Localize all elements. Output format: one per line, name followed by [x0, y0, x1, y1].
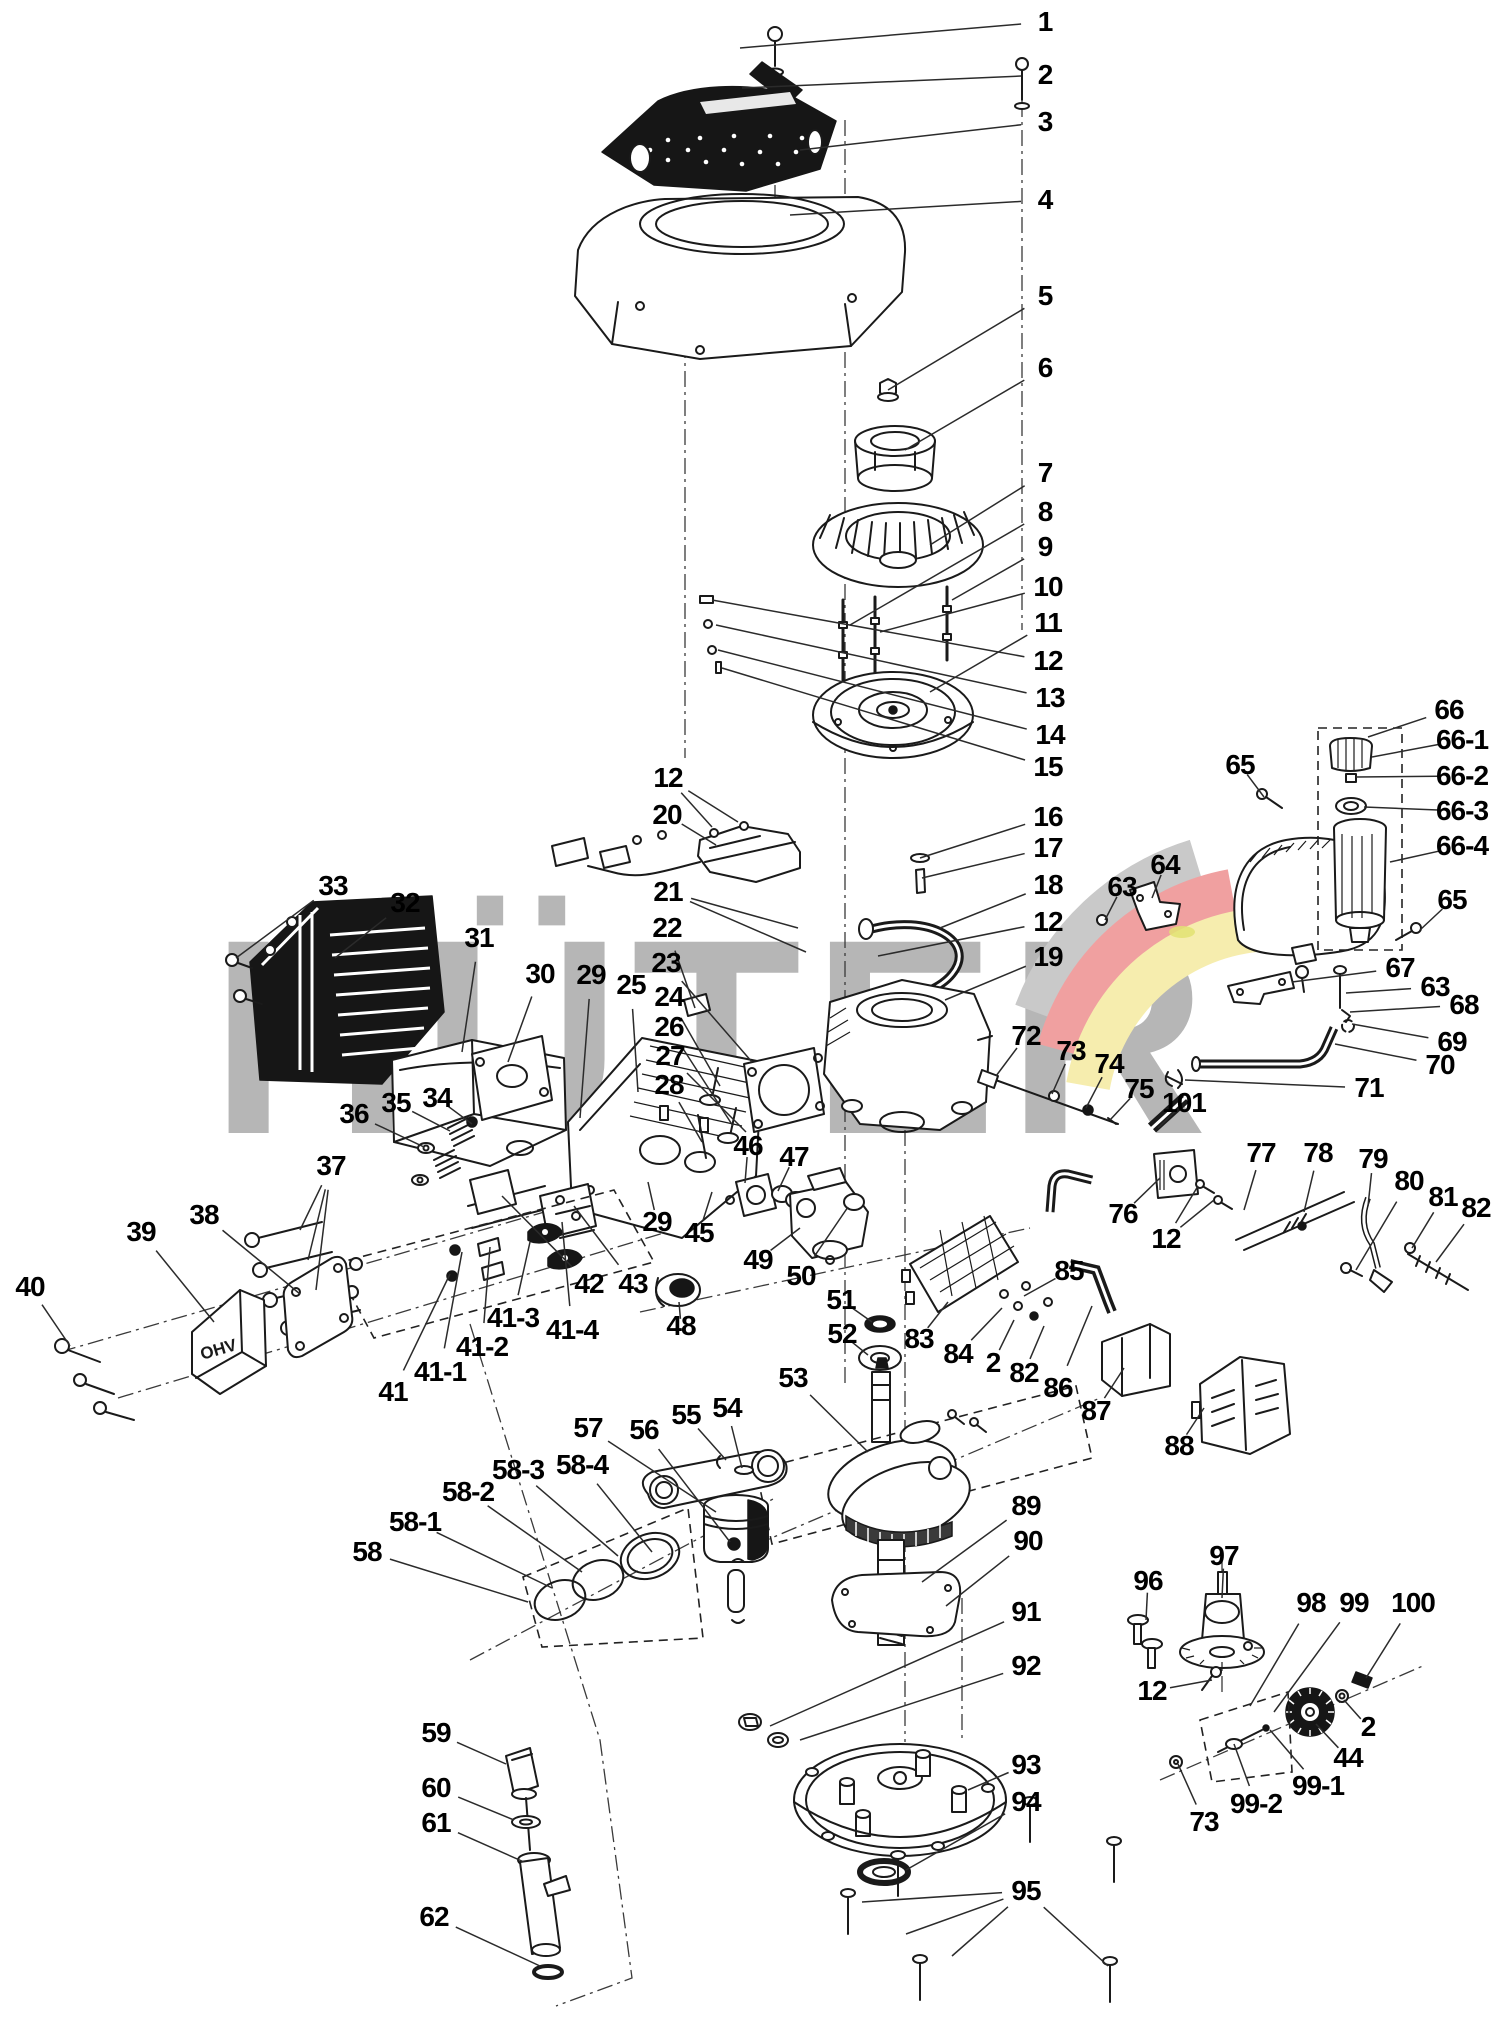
- part-label-40: 40: [15, 1271, 44, 1303]
- part-label-52: 52: [827, 1318, 856, 1350]
- part-label-93: 93: [1011, 1749, 1040, 1781]
- part-label-101: 101: [1162, 1087, 1206, 1119]
- part-label-59: 59: [421, 1717, 450, 1749]
- part-label-95: 95: [1011, 1875, 1040, 1907]
- part-label-83: 83: [904, 1323, 933, 1355]
- part-label-66-3: 66-3: [1436, 795, 1488, 827]
- part-label-58-3: 58-3: [492, 1454, 544, 1486]
- part-label-88: 88: [1164, 1430, 1193, 1462]
- part-label-22: 22: [652, 912, 681, 944]
- part-label-41-1: 41-1: [414, 1356, 466, 1388]
- part-label-65: 65: [1225, 749, 1254, 781]
- part-label-4: 4: [1038, 184, 1053, 216]
- part-label-81: 81: [1428, 1181, 1457, 1213]
- part-label-66-2: 66-2: [1436, 760, 1488, 792]
- part-label-9: 9: [1038, 531, 1053, 563]
- part-label-55: 55: [671, 1399, 700, 1431]
- part-label-77: 77: [1246, 1137, 1275, 1169]
- part-label-82: 82: [1461, 1192, 1490, 1224]
- part-label-6: 6: [1038, 352, 1053, 384]
- part-label-98: 98: [1296, 1587, 1325, 1619]
- part-label-87: 87: [1081, 1395, 1110, 1427]
- part-label-63: 63: [1107, 871, 1136, 903]
- part-label-94: 94: [1011, 1786, 1040, 1818]
- part-label-43: 43: [618, 1268, 647, 1300]
- part-label-61: 61: [421, 1807, 450, 1839]
- part-label-99-1: 99-1: [1292, 1770, 1344, 1802]
- part-label-64: 64: [1150, 849, 1179, 881]
- part-label-50: 50: [786, 1260, 815, 1292]
- part-label-78: 78: [1303, 1137, 1332, 1169]
- part-label-2: 2: [986, 1347, 1001, 1379]
- part-label-41-4: 41-4: [546, 1314, 598, 1346]
- part-label-41-3: 41-3: [487, 1302, 539, 1334]
- part-label-73: 73: [1056, 1035, 1085, 1067]
- part-label-1: 1: [1038, 6, 1053, 38]
- part-label-74: 74: [1094, 1048, 1123, 1080]
- part-label-49: 49: [743, 1244, 772, 1276]
- part-label-86: 86: [1043, 1372, 1072, 1404]
- part-label-16: 16: [1033, 801, 1062, 833]
- part-label-12: 12: [653, 762, 682, 794]
- part-label-67: 67: [1385, 952, 1414, 984]
- part-label-3: 3: [1038, 106, 1053, 138]
- labels-layer: 12345678910111213141516171812196666-166-…: [0, 0, 1495, 2026]
- part-label-12: 12: [1137, 1675, 1166, 1707]
- part-label-36: 36: [339, 1098, 368, 1130]
- part-label-41: 41: [378, 1376, 407, 1408]
- part-label-42: 42: [574, 1268, 603, 1300]
- part-label-57: 57: [573, 1412, 602, 1444]
- part-label-33: 33: [318, 870, 347, 902]
- part-label-72: 72: [1011, 1020, 1040, 1052]
- part-label-80: 80: [1394, 1165, 1423, 1197]
- part-label-32: 32: [390, 887, 419, 919]
- part-label-47: 47: [779, 1141, 808, 1173]
- part-label-34: 34: [422, 1082, 451, 1114]
- part-label-30: 30: [525, 958, 554, 990]
- part-label-17: 17: [1033, 832, 1062, 864]
- part-label-7: 7: [1038, 457, 1053, 489]
- part-label-54: 54: [712, 1392, 741, 1424]
- part-label-82: 82: [1009, 1357, 1038, 1389]
- part-label-92: 92: [1011, 1650, 1040, 1682]
- part-label-29: 29: [576, 959, 605, 991]
- part-label-19: 19: [1033, 941, 1062, 973]
- part-label-20: 20: [652, 799, 681, 831]
- part-label-26: 26: [654, 1011, 683, 1043]
- part-label-31: 31: [464, 922, 493, 954]
- part-label-2: 2: [1361, 1711, 1376, 1743]
- part-label-75: 75: [1124, 1073, 1153, 1105]
- part-label-12: 12: [1151, 1223, 1180, 1255]
- part-label-10: 10: [1033, 571, 1062, 603]
- part-label-70: 70: [1425, 1049, 1454, 1081]
- part-label-99: 99: [1339, 1587, 1368, 1619]
- part-label-23: 23: [651, 947, 680, 979]
- part-label-62: 62: [419, 1901, 448, 1933]
- part-label-2: 2: [1038, 59, 1053, 91]
- part-label-29: 29: [642, 1206, 671, 1238]
- part-label-100: 100: [1391, 1587, 1435, 1619]
- part-label-24: 24: [654, 981, 683, 1013]
- part-label-38: 38: [189, 1199, 218, 1231]
- part-label-65: 65: [1437, 884, 1466, 916]
- part-label-63: 63: [1420, 971, 1449, 1003]
- part-label-12: 12: [1033, 906, 1062, 938]
- part-label-58-1: 58-1: [389, 1506, 441, 1538]
- part-label-14: 14: [1035, 719, 1064, 751]
- part-label-79: 79: [1358, 1143, 1387, 1175]
- part-label-11: 11: [1034, 607, 1062, 639]
- part-label-58-2: 58-2: [442, 1476, 494, 1508]
- part-label-53: 53: [778, 1362, 807, 1394]
- part-label-60: 60: [421, 1772, 450, 1804]
- part-label-21: 21: [653, 876, 682, 908]
- part-label-51: 51: [826, 1284, 855, 1316]
- part-label-76: 76: [1108, 1198, 1137, 1230]
- part-label-68: 68: [1449, 989, 1478, 1021]
- part-label-27: 27: [655, 1040, 684, 1072]
- part-label-45: 45: [684, 1217, 713, 1249]
- part-label-66-1: 66-1: [1436, 724, 1488, 756]
- part-label-66-4: 66-4: [1436, 830, 1488, 862]
- part-label-66: 66: [1434, 694, 1463, 726]
- part-label-12: 12: [1033, 645, 1062, 677]
- part-label-96: 96: [1133, 1565, 1162, 1597]
- part-label-89: 89: [1011, 1490, 1040, 1522]
- part-label-25: 25: [616, 969, 645, 1001]
- part-label-48: 48: [666, 1310, 695, 1342]
- part-label-91: 91: [1011, 1596, 1040, 1628]
- part-label-15: 15: [1033, 751, 1062, 783]
- part-label-56: 56: [629, 1414, 658, 1446]
- part-label-99-2: 99-2: [1230, 1788, 1282, 1820]
- part-label-58-4: 58-4: [556, 1449, 608, 1481]
- part-label-18: 18: [1033, 869, 1062, 901]
- part-label-58: 58: [352, 1536, 381, 1568]
- part-label-35: 35: [381, 1087, 410, 1119]
- part-label-97: 97: [1209, 1540, 1238, 1572]
- part-label-39: 39: [126, 1216, 155, 1248]
- exploded-diagram-page: HÜTER: [0, 0, 1495, 2026]
- part-label-13: 13: [1035, 682, 1064, 714]
- part-label-73: 73: [1189, 1806, 1218, 1838]
- part-label-37: 37: [316, 1150, 345, 1182]
- part-label-5: 5: [1038, 280, 1053, 312]
- part-label-28: 28: [654, 1069, 683, 1101]
- part-label-71: 71: [1354, 1072, 1383, 1104]
- part-label-90: 90: [1013, 1525, 1042, 1557]
- part-label-84: 84: [943, 1338, 972, 1370]
- part-label-8: 8: [1038, 496, 1053, 528]
- part-label-85: 85: [1054, 1255, 1083, 1287]
- part-label-46: 46: [733, 1130, 762, 1162]
